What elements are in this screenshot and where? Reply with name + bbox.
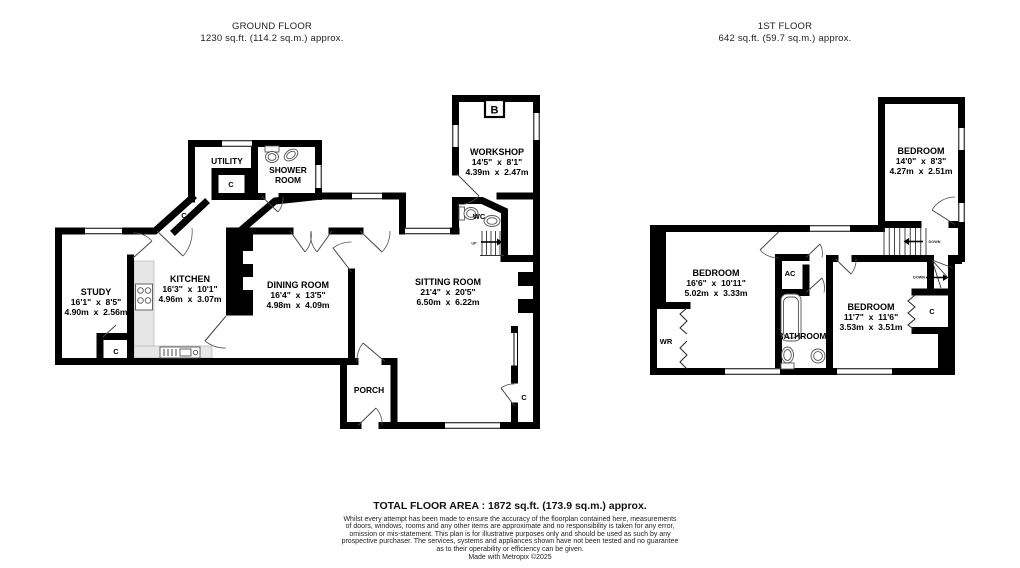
cupboard-label: C <box>113 347 119 356</box>
window <box>725 368 780 375</box>
basin-icon <box>811 349 825 363</box>
airing-cupboard-label: AC <box>785 269 796 278</box>
boiler-icon: B <box>485 100 504 117</box>
disclaimer-text: Whilst every attempt has been made to en… <box>0 516 1020 553</box>
window <box>837 368 892 375</box>
utility-label: UTILITY <box>211 156 243 166</box>
study-metric: 4.90m x 2.56m <box>64 307 127 317</box>
stove-icon <box>136 284 153 310</box>
bedroom-right-metric: 3.53m x 3.51m <box>839 322 902 332</box>
bedroom-top-metric: 4.27m x 2.51m <box>889 166 952 176</box>
bedroom-top-imperial: 14'0" x 8'3" <box>896 156 946 166</box>
basin-icon <box>282 147 300 164</box>
window <box>810 225 850 232</box>
cupboard-label: C <box>228 180 234 189</box>
fireplace-tab <box>518 299 533 313</box>
window <box>452 125 459 147</box>
chimney-breast <box>226 228 253 316</box>
study-imperial: 16'1" x 8'5" <box>71 297 121 307</box>
basin-icon <box>484 216 500 227</box>
bedroom-right-label: BEDROOM <box>848 302 895 312</box>
window <box>85 228 122 235</box>
shower-room-label-2: ROOM <box>275 175 301 185</box>
workshop-metric: 4.39m x 2.47m <box>465 167 528 177</box>
first-labels: BEDROOM 14'0" x 8'3" 4.27m x 2.51m BEDRO… <box>660 146 953 346</box>
bathroom-label: BATHROOM <box>778 331 827 341</box>
stairs-up: UP <box>471 231 504 256</box>
total-floor-area: TOTAL FLOOR AREA : 1872 sq.ft. (173.9 sq… <box>0 500 1020 512</box>
wc-label: WC <box>473 212 486 221</box>
kitchen-label: KITCHEN <box>170 274 210 284</box>
bedroom-left-imperial: 16'6" x 10'11" <box>686 278 746 288</box>
window <box>533 113 540 140</box>
workshop-imperial: 14'5" x 8'1" <box>472 157 522 167</box>
bedroom-left-metric: 5.02m x 3.33m <box>684 288 747 298</box>
first-floor-plan: DOWN DOWN <box>650 101 965 376</box>
down-label: DOWN <box>929 240 941 244</box>
window <box>445 422 500 429</box>
fireplace-tab <box>518 272 533 286</box>
window <box>958 128 965 150</box>
cupboard-label: C <box>929 307 935 316</box>
window <box>958 203 965 222</box>
study-label: STUDY <box>81 287 112 297</box>
floorplan-page: GROUND FLOOR 1230 sq.ft. (114.2 sq.m.) a… <box>0 0 1020 568</box>
sitting-room-label: SITTING ROOM <box>415 277 481 287</box>
dining-room-imperial: 16'4" x 13'5" <box>270 290 325 300</box>
dining-room-label: DINING ROOM <box>267 280 329 290</box>
kitchen-sink-icon <box>160 347 200 358</box>
sitting-room-imperial: 21'4" x 20'5" <box>420 287 475 297</box>
window <box>222 140 252 147</box>
window <box>405 228 450 235</box>
toilet-icon <box>265 146 279 163</box>
bedroom-top-label: BEDROOM <box>898 146 945 156</box>
toilet-icon <box>781 347 794 369</box>
credit-text: Made with Metropix ©2025 <box>0 554 1020 561</box>
floorplan-canvas: UP B <box>0 0 1020 568</box>
down-label: DOWN <box>913 276 925 280</box>
internal-window <box>514 333 518 369</box>
cupboard-label: C <box>181 211 187 220</box>
sitting-room-metric: 6.50m x 6.22m <box>416 297 479 307</box>
wardrobe-label: WR <box>660 337 673 346</box>
bedroom-right-imperial: 11'7" x 11'6" <box>844 312 898 322</box>
up-label: UP <box>471 242 477 246</box>
shower-room-label-1: SHOWER <box>269 165 307 175</box>
ground-walls <box>59 99 537 426</box>
boiler-label: B <box>491 105 499 117</box>
ground-floor-plan: UP B <box>59 99 541 430</box>
bedroom-left-label: BEDROOM <box>693 268 740 278</box>
window <box>315 165 322 188</box>
workshop-label: WORKSHOP <box>470 147 524 157</box>
kitchen-metric: 4.96m x 3.07m <box>158 294 221 304</box>
dining-room-metric: 4.98m x 4.09m <box>266 300 329 310</box>
window <box>352 193 382 200</box>
kitchen-imperial: 16'3" x 10'1" <box>162 284 217 294</box>
cupboard-label: C <box>521 393 527 402</box>
porch-label: PORCH <box>354 385 384 395</box>
